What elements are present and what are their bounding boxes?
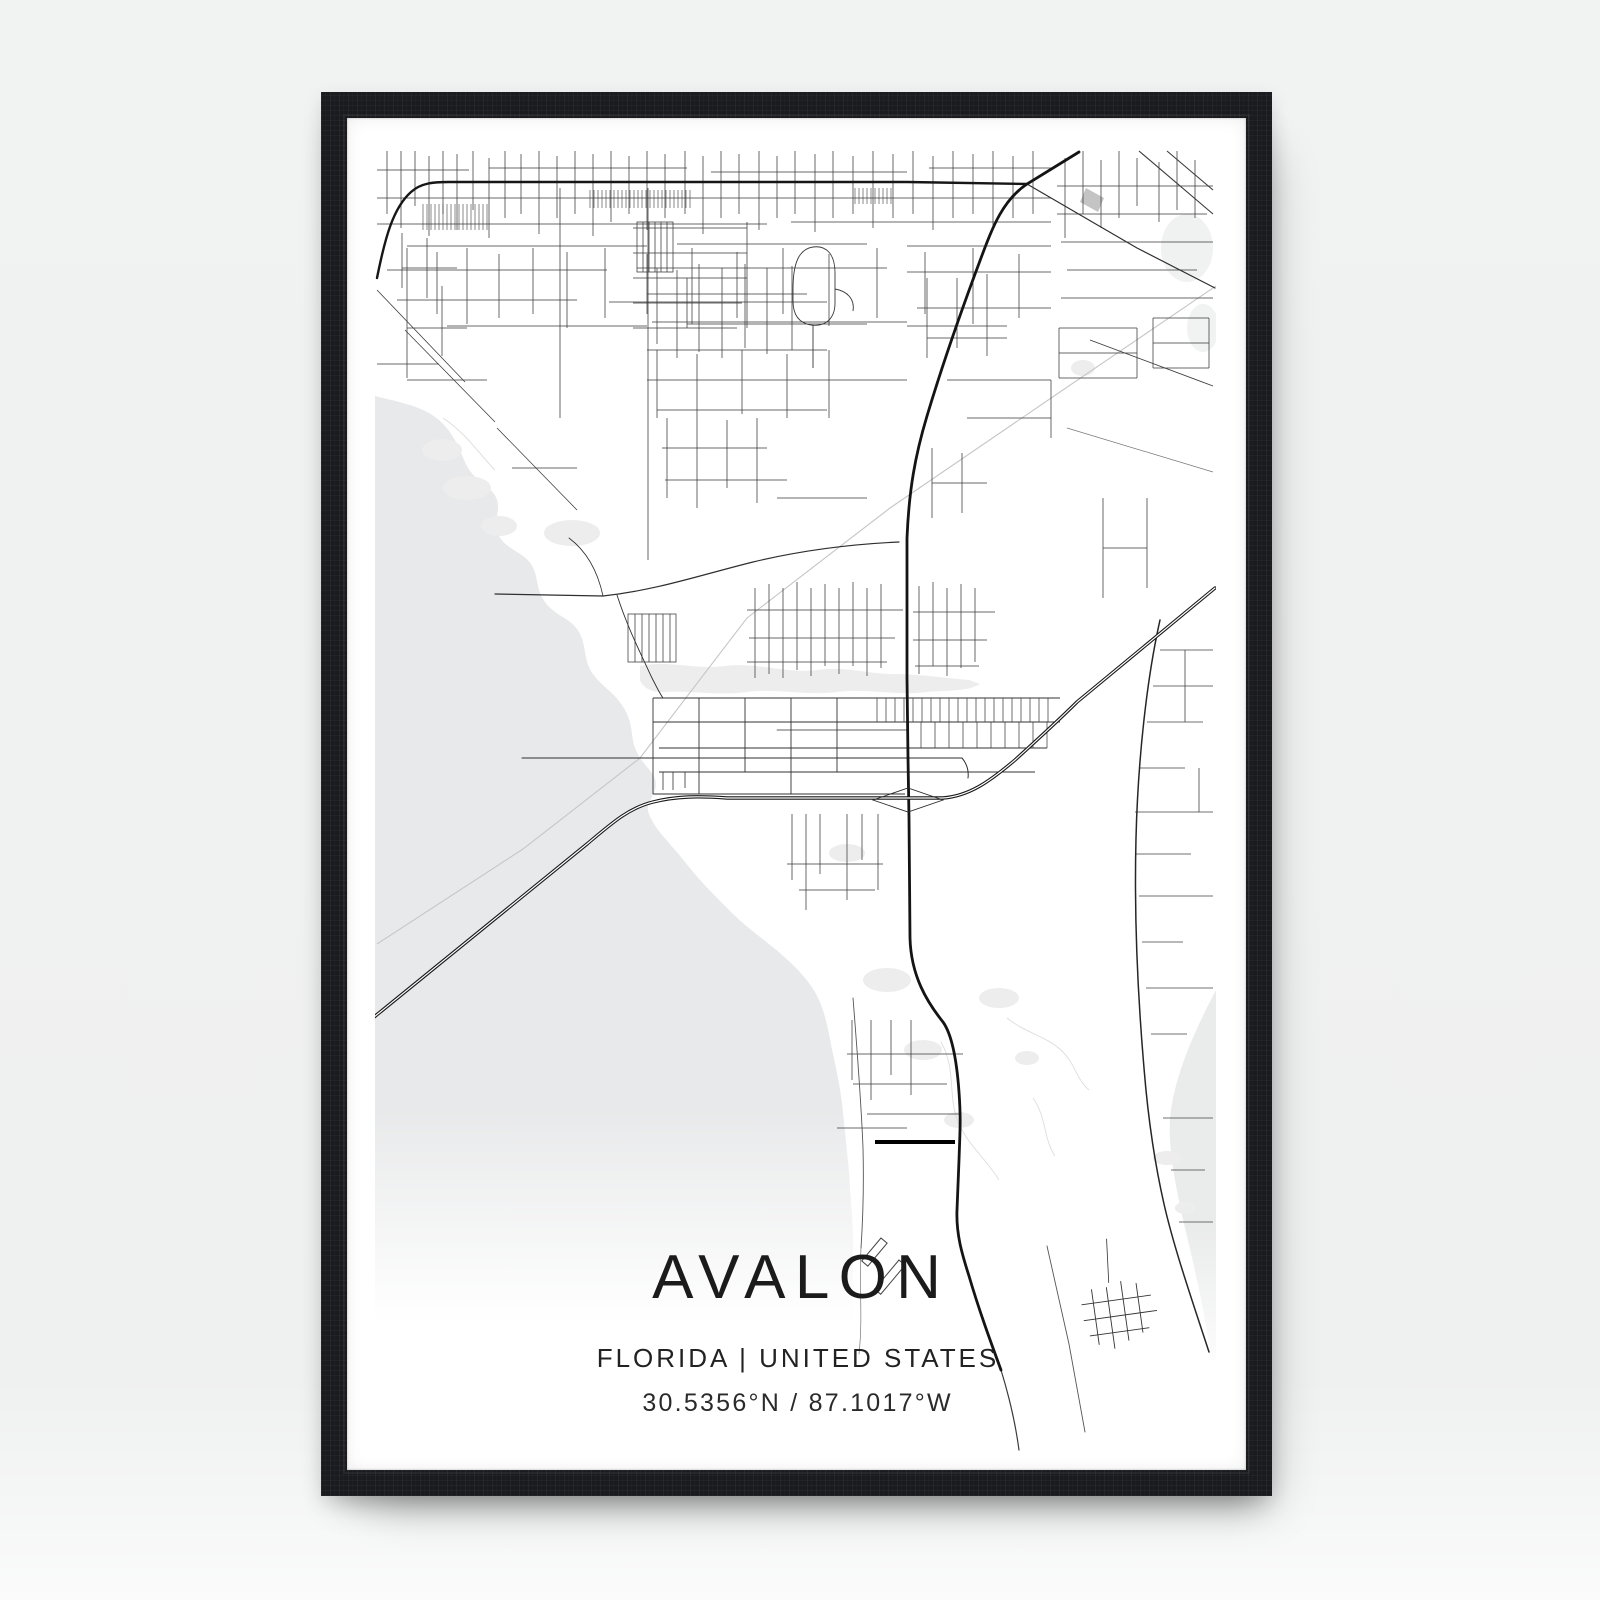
map-title: AVALON: [347, 1246, 1246, 1310]
poster-caption: AVALON FLORIDA | UNITED STATES 30.5356°N…: [347, 1246, 1246, 1417]
poster-paper: AVALON FLORIDA | UNITED STATES 30.5356°N…: [347, 118, 1246, 1470]
map-coordinates: 30.5356°N / 87.1017°W: [347, 1390, 1246, 1417]
poster-frame: AVALON FLORIDA | UNITED STATES 30.5356°N…: [321, 92, 1272, 1496]
map-grid-streets: [653, 698, 1060, 794]
map-water: [371, 396, 1216, 1360]
map-subtitle: FLORIDA | UNITED STATES: [347, 1344, 1246, 1372]
